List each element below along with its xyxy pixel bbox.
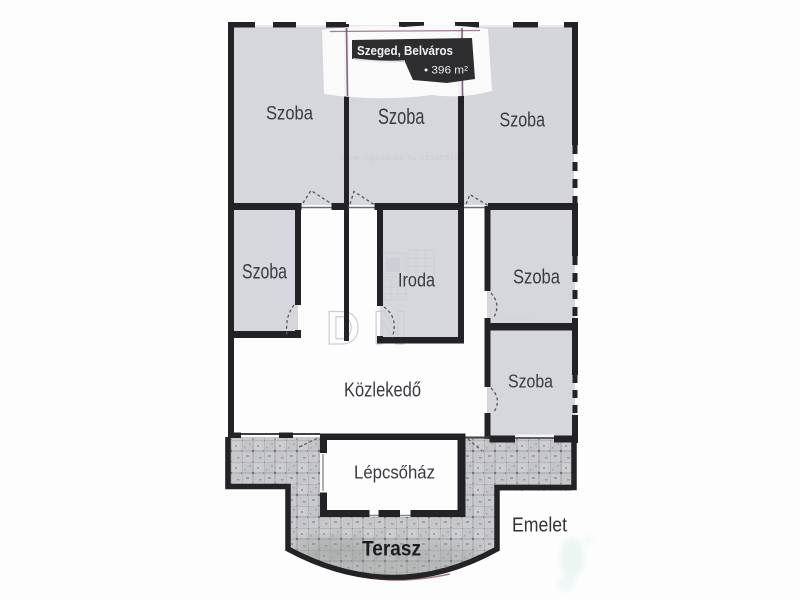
svg-text:Szoba: Szoba xyxy=(266,103,313,125)
svg-text:Szoba: Szoba xyxy=(242,260,287,284)
svg-text:ingatlanok.hu: ingatlanok.hu xyxy=(492,317,541,324)
svg-text:Szeged, Belváros: Szeged, Belváros xyxy=(357,44,453,58)
svg-text:• 396 m²: • 396 m² xyxy=(424,65,468,77)
svg-text:Iroda: Iroda xyxy=(398,271,435,292)
svg-text:www.ingatlanok.hu 123456789: www.ingatlanok.hu 123456789 xyxy=(340,153,465,162)
svg-text:Közlekedő: Közlekedő xyxy=(344,379,421,402)
svg-text:DN: DN xyxy=(326,301,420,354)
svg-text:Lépcsőház: Lépcsőház xyxy=(354,462,435,483)
svg-text:Szoba: Szoba xyxy=(513,267,561,289)
svg-text:Emelet: Emelet xyxy=(512,515,567,537)
svg-text:Terasz: Terasz xyxy=(362,538,421,561)
svg-text:Szoba: Szoba xyxy=(378,104,425,129)
svg-text:Szoba: Szoba xyxy=(500,110,546,132)
svg-text:Szoba: Szoba xyxy=(508,371,554,392)
